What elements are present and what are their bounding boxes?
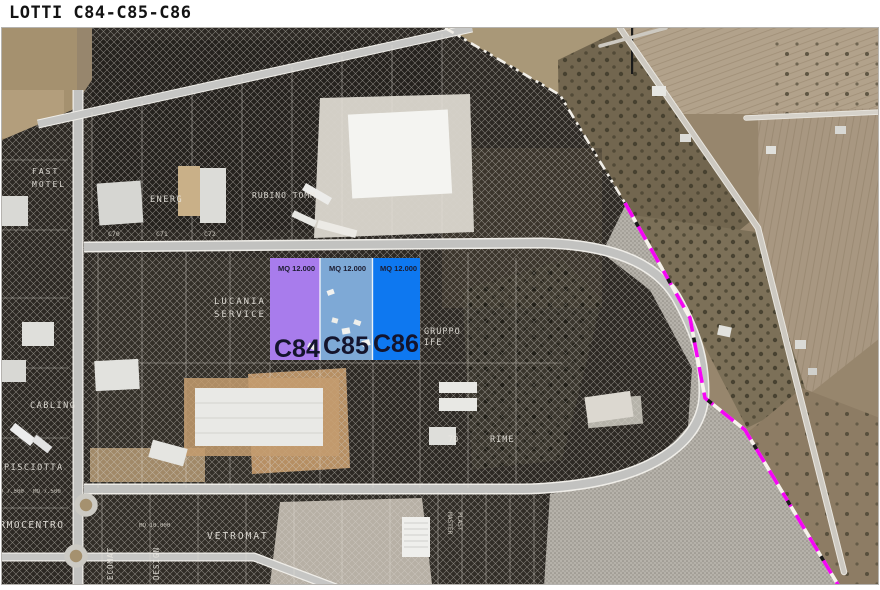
building bbox=[94, 359, 140, 391]
label-rubino-tomm: RUBINO TOMM bbox=[252, 191, 316, 200]
lot-c84-label: C84 bbox=[274, 335, 320, 363]
lot-c85-area: MQ 12.000 bbox=[329, 264, 366, 273]
label-lot-c72: C72 bbox=[204, 230, 216, 238]
plan-page: LOTTI C84-C85-C86 bbox=[0, 0, 880, 590]
label-master: MASTER bbox=[446, 512, 453, 535]
label-vetromat: VETROMAT bbox=[207, 531, 269, 542]
building bbox=[195, 388, 323, 446]
lot-c86-area: MQ 12.000 bbox=[380, 264, 417, 273]
roundabout bbox=[67, 547, 85, 565]
label-design: DESIGN bbox=[152, 547, 161, 580]
label-gruppo: GRUPPO bbox=[424, 327, 461, 337]
building bbox=[652, 86, 666, 96]
aerial-photo: MQ 12.000 MQ 12.000 MQ 12.000 C84 C85 C8… bbox=[2, 28, 878, 584]
highlighted-lots: MQ 12.000 MQ 12.000 MQ 12.000 C84 C85 C8… bbox=[270, 258, 420, 363]
building bbox=[200, 168, 226, 223]
building bbox=[439, 382, 477, 393]
building bbox=[795, 340, 806, 349]
building bbox=[178, 166, 200, 216]
building bbox=[439, 398, 477, 411]
lot-c86-label: C86 bbox=[373, 330, 419, 358]
building bbox=[2, 196, 28, 226]
label-service: SERVICE bbox=[214, 310, 266, 320]
label-energ: ENERG bbox=[150, 195, 183, 205]
label-ife: IFE bbox=[424, 338, 442, 348]
building bbox=[22, 322, 54, 346]
roundabout bbox=[77, 496, 95, 514]
label-termocentro: TERMOCENTRO bbox=[2, 520, 64, 531]
olive-grove bbox=[772, 40, 878, 114]
label-mq7500-a: MQ 7.500 bbox=[2, 489, 24, 495]
label-lot-c70: C70 bbox=[108, 230, 120, 238]
building bbox=[766, 146, 776, 154]
label-motel: MOTEL bbox=[32, 180, 66, 189]
site-plan-map: MQ 12.000 MQ 12.000 MQ 12.000 C84 C85 C8… bbox=[2, 28, 878, 584]
label-lucania: LUCANIA bbox=[214, 297, 266, 307]
label-lot-c71: C71 bbox=[156, 230, 168, 238]
building bbox=[808, 368, 817, 375]
label-mq7500-b: MQ 7.500 bbox=[33, 489, 61, 495]
label-rime: RIME bbox=[490, 435, 514, 445]
page-title: LOTTI C84-C85-C86 bbox=[9, 3, 192, 23]
lot-c85-label: C85 bbox=[323, 332, 369, 360]
building bbox=[680, 134, 691, 142]
label-ecomat: ECOMAT bbox=[106, 547, 115, 580]
lot-c84-area: MQ 12.000 bbox=[278, 264, 315, 273]
label-70: 70 bbox=[448, 435, 458, 445]
label-pisciotta: PISCIOTTA bbox=[4, 463, 64, 473]
building bbox=[2, 360, 26, 382]
building bbox=[835, 126, 846, 134]
label-cabling: CABLING bbox=[30, 401, 76, 411]
label-fast: FAST bbox=[32, 167, 59, 176]
label-mq10000: MQ 10.000 bbox=[139, 523, 171, 529]
building bbox=[348, 109, 452, 198]
building bbox=[97, 181, 144, 226]
label-plast: PLAST bbox=[456, 512, 463, 531]
